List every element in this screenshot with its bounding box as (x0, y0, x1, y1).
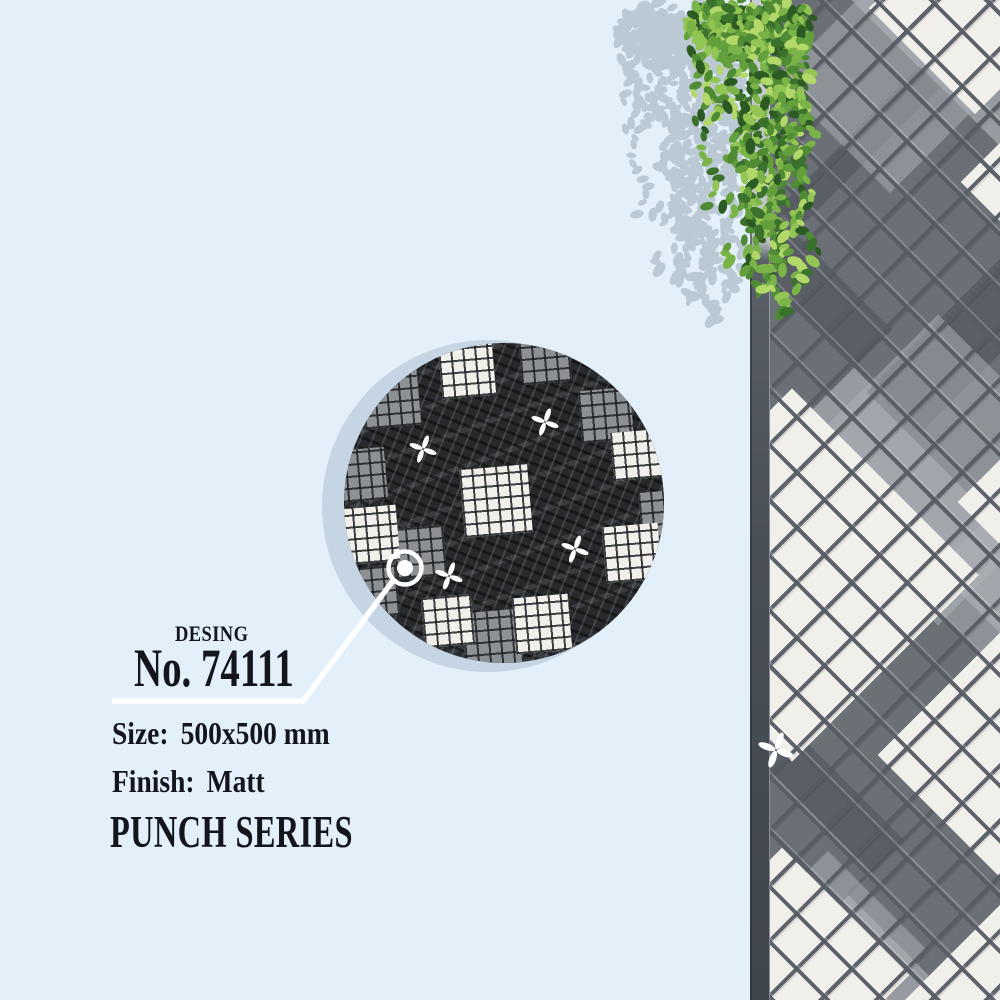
finish-value: Matt (207, 763, 265, 799)
series-name: PUNCH SERIES (110, 810, 353, 855)
mosaic-gray-patch (346, 565, 400, 619)
mosaic-white-patch (602, 523, 663, 584)
mosaic-gray-patch (518, 343, 572, 385)
plant-shadow (611, 0, 754, 330)
tile-pattern-photo (770, 0, 1000, 1000)
mosaic-white-patch (344, 505, 400, 566)
mosaic-white-patch (438, 343, 497, 399)
mosaic-white-patch (459, 464, 533, 538)
mosaic-gray-patch (586, 637, 645, 663)
design-number: No. 74111 (134, 641, 294, 695)
mosaic-white-patch (610, 429, 662, 481)
finish-label: Finish: (112, 763, 195, 799)
wall-edge-bar (750, 0, 770, 1000)
finish-line: Finish:Matt (112, 764, 265, 799)
catalog-page: DESING No. 74111 Size:500x500 mm Finish:… (0, 0, 1000, 1000)
size-line: Size:500x500 mm (112, 716, 330, 751)
tile-grout-overlay (770, 0, 1000, 1000)
mosaic-white-patch (421, 594, 475, 648)
size-value: 500x500 mm (181, 715, 330, 751)
mosaic-gray-patch (344, 447, 388, 503)
mosaic-gray-patch (393, 525, 447, 579)
size-label: Size: (112, 715, 169, 751)
mosaic-gray-patch (361, 369, 422, 430)
tile-zoom-circle (344, 343, 664, 663)
mosaic-white-patch (512, 594, 573, 655)
